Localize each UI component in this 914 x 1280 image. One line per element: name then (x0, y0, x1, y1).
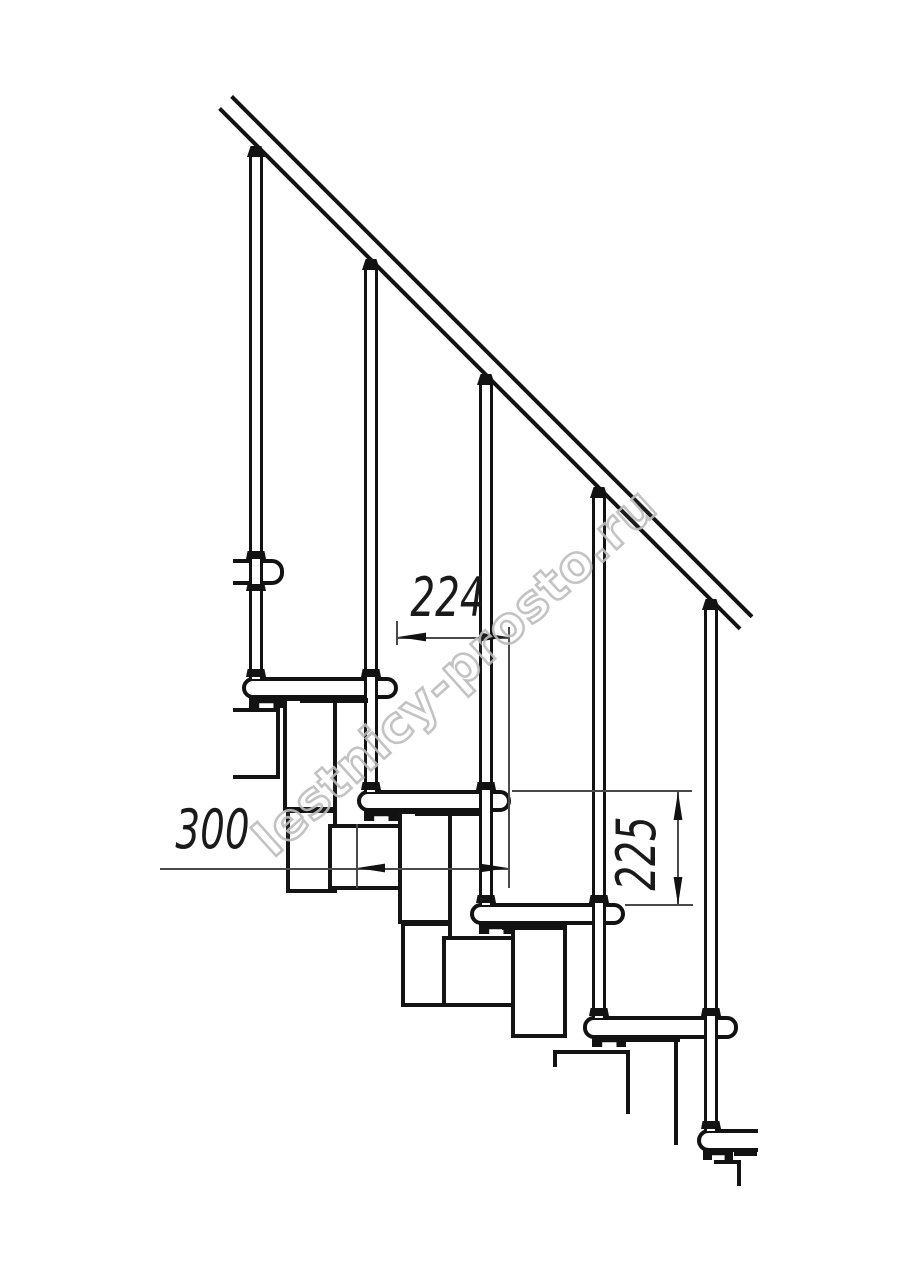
baluster-collar (476, 895, 496, 903)
tread-attachment-bar (734, 1150, 757, 1156)
tread-clamp (364, 811, 398, 821)
module-cut-line (737, 1160, 741, 1186)
dim-label-rise-box: 225 (609, 805, 665, 901)
tread-5 (697, 1129, 758, 1152)
tread-clamp (592, 1037, 626, 1047)
tread-attachment-bar (623, 1037, 680, 1042)
module-cut-line (553, 1050, 630, 1054)
dim-ext-line (396, 621, 398, 645)
module-box (442, 936, 518, 1007)
tread-clamp (249, 698, 283, 708)
tread-attachment-bar (502, 924, 567, 930)
baluster-collar (246, 551, 266, 559)
dim-ext-line (625, 904, 693, 906)
tread-attachment-bar (415, 811, 481, 816)
dim-ext-line (512, 790, 692, 792)
baluster-collar (589, 895, 609, 903)
dim-ext-line (356, 824, 358, 888)
dim-arrow-down (673, 877, 683, 905)
dim-label-rise: 225 (611, 816, 663, 890)
dim-arrow-up (673, 792, 683, 820)
baluster-collar (701, 1008, 721, 1016)
tread-attachment-bar (300, 698, 368, 703)
baluster-collar (476, 782, 496, 790)
baluster-collar (589, 1008, 609, 1016)
module-cut-line (626, 1050, 630, 1114)
module-column (511, 923, 567, 1038)
module-cut-line (674, 1039, 678, 1145)
module-box (328, 824, 405, 890)
module-column (398, 810, 452, 924)
dim-arrow-right (480, 863, 508, 873)
dim-arrow-left (398, 632, 426, 642)
staircase-drawing-canvas: 224 300 225 lestnicy-prosto.ru (0, 0, 914, 1280)
module-box-cut (233, 708, 280, 779)
baluster-collar (361, 669, 381, 677)
dim-ext-line (508, 627, 510, 888)
baluster-1 (249, 156, 263, 679)
baluster-collar (246, 669, 266, 677)
tread-clamp (703, 1150, 733, 1160)
baluster-5 (704, 610, 718, 1131)
baluster-collar (246, 584, 266, 591)
module-cut-line (553, 1050, 557, 1067)
baluster-collar (701, 1121, 721, 1129)
